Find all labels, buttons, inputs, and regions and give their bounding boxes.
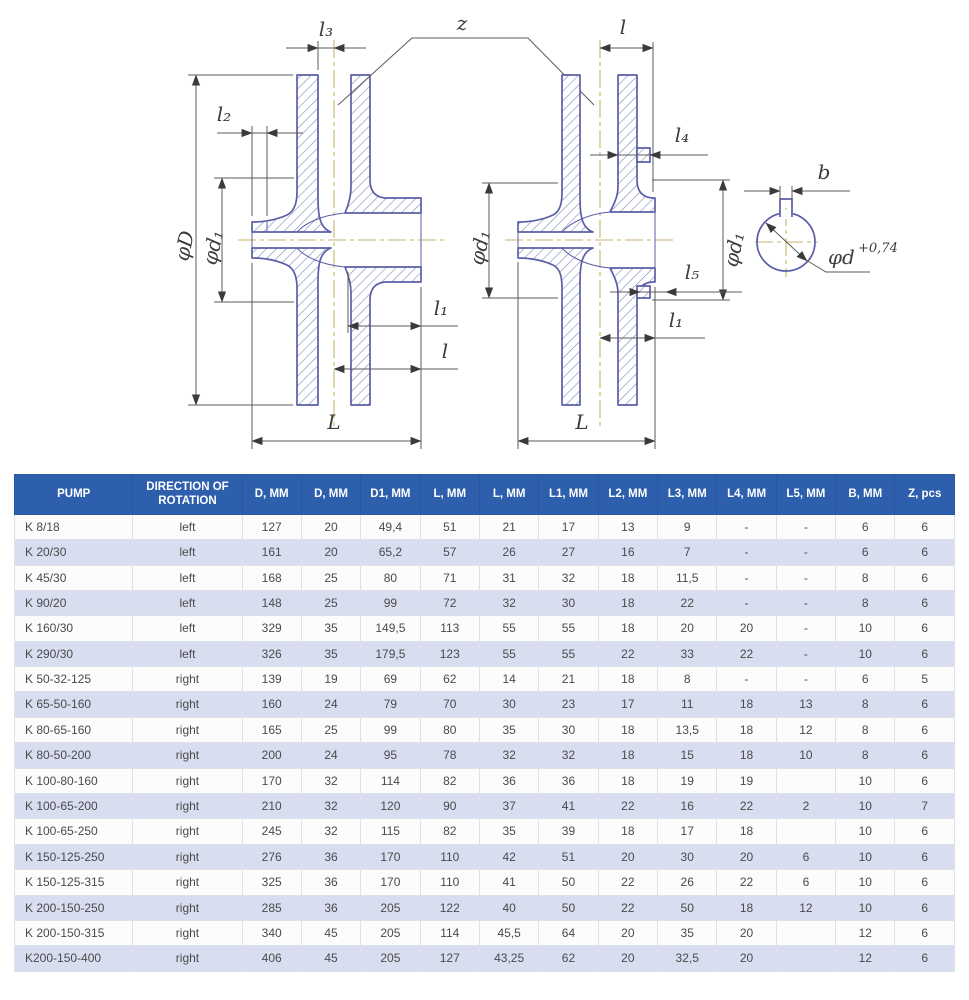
table-cell: 6 (895, 921, 955, 946)
column-header-10: L4, MM (717, 475, 776, 515)
pump-name: K 160/30 (15, 616, 133, 641)
table-cell: 24 (301, 743, 360, 768)
table-cell: 7 (895, 794, 955, 819)
table-cell: 12 (776, 717, 835, 742)
table-row: K 80-65-160right16525998035301813,518128… (15, 717, 955, 742)
column-header-0: PUMP (15, 475, 133, 515)
table-cell: 36 (301, 895, 360, 920)
table-cell: 21 (479, 514, 538, 539)
table-cell: - (776, 565, 835, 590)
table-cell: 340 (242, 921, 301, 946)
table-cell: 8 (836, 565, 895, 590)
table-cell: 20 (717, 946, 776, 971)
table-cell: 30 (539, 717, 598, 742)
table-cell: 120 (361, 794, 420, 819)
drawing-canvas: φD φd₁ l₂ l₃ (0, 0, 969, 472)
table-cell: 25 (301, 717, 360, 742)
table-row: K 65-50-160right16024797030231711181386 (15, 692, 955, 717)
table-cell: 6 (836, 514, 895, 539)
table-cell: 55 (479, 641, 538, 666)
table-row: K 45/30left16825807131321811,5--86 (15, 565, 955, 590)
table-cell (776, 921, 835, 946)
table-cell: - (717, 565, 776, 590)
pump-name: K 8/18 (15, 514, 133, 539)
pump-name: K 100-65-200 (15, 794, 133, 819)
table-cell: 62 (539, 946, 598, 971)
table-cell: 80 (361, 565, 420, 590)
table-cell: 114 (420, 921, 479, 946)
table-cell: 6 (895, 565, 955, 590)
table-cell: 82 (420, 819, 479, 844)
table-cell: 21 (539, 667, 598, 692)
table-cell: - (717, 667, 776, 692)
dim-label-l4: l₄ (675, 123, 689, 147)
table-cell: 22 (658, 590, 717, 615)
table-cell: 10 (836, 895, 895, 920)
table-cell: 18 (598, 565, 657, 590)
front-shroud-lower (252, 248, 331, 405)
table-cell: left (133, 616, 242, 641)
table-cell: 10 (836, 768, 895, 793)
table-cell: right (133, 870, 242, 895)
table-cell: 6 (776, 870, 835, 895)
table-cell: - (776, 616, 835, 641)
pump-dimensions-table: PUMPDIRECTION OF ROTATIOND, MMD, MMD1, M… (14, 474, 955, 972)
table-cell: 139 (242, 667, 301, 692)
table-cell: 6 (895, 692, 955, 717)
table-cell: 7 (658, 540, 717, 565)
table-cell: 8 (836, 717, 895, 742)
dim-label-phid-tolerance: +0,74 (858, 241, 898, 256)
table-cell: 20 (598, 844, 657, 869)
table-cell: 57 (420, 540, 479, 565)
table-cell: 11,5 (658, 565, 717, 590)
column-header-8: L2, MM (598, 475, 657, 515)
table-cell: 205 (361, 895, 420, 920)
table-cell: 17 (598, 692, 657, 717)
table-cell: 22 (598, 794, 657, 819)
table-row: K 90/20left14825997232301822--86 (15, 590, 955, 615)
table-cell: 325 (242, 870, 301, 895)
table-cell: - (717, 590, 776, 615)
table-cell: - (717, 514, 776, 539)
table-cell: 30 (658, 844, 717, 869)
column-header-4: D1, MM (361, 475, 420, 515)
table-row: K 200-150-315right3404520511445,56420352… (15, 921, 955, 946)
front-shroud-upper-right (518, 75, 593, 232)
pump-name: K 20/30 (15, 540, 133, 565)
table-cell: 55 (539, 641, 598, 666)
table-cell: 110 (420, 844, 479, 869)
table-cell: 6 (895, 768, 955, 793)
table-cell: 42 (479, 844, 538, 869)
column-header-7: L1, MM (539, 475, 598, 515)
pump-name: K 45/30 (15, 565, 133, 590)
dim-label-b: b (818, 160, 831, 184)
table-cell: 2 (776, 794, 835, 819)
table-cell: 69 (361, 667, 420, 692)
table-cell: 210 (242, 794, 301, 819)
table-cell: 17 (539, 514, 598, 539)
table-row: K 50-32-125right1391969621421188--65 (15, 667, 955, 692)
table-cell: 32 (301, 768, 360, 793)
table-cell (776, 819, 835, 844)
table-cell: 10 (836, 844, 895, 869)
table-cell: 165 (242, 717, 301, 742)
table-cell: 19 (301, 667, 360, 692)
table-cell: left (133, 590, 242, 615)
table-cell: 6 (895, 870, 955, 895)
pump-name: K 290/30 (15, 641, 133, 666)
table-cell: 37 (479, 794, 538, 819)
table-cell: 90 (420, 794, 479, 819)
table-cell: 65,2 (361, 540, 420, 565)
table-cell: 71 (420, 565, 479, 590)
table-row: K 80-50-200right20024957832321815181086 (15, 743, 955, 768)
table-cell: 6 (895, 590, 955, 615)
pump-name: K 200-150-250 (15, 895, 133, 920)
table-cell: 55 (539, 616, 598, 641)
impeller-drawing: φD φd₁ l₂ l₃ (0, 0, 969, 472)
table-cell (776, 946, 835, 971)
table-cell: right (133, 743, 242, 768)
table-cell: right (133, 717, 242, 742)
table-cell: 15 (658, 743, 717, 768)
table-cell: 22 (598, 895, 657, 920)
pump-name: K 80-65-160 (15, 717, 133, 742)
table-row: K 200-150-250right2853620512240502250181… (15, 895, 955, 920)
table-cell: 148 (242, 590, 301, 615)
pump-name: K 150-125-315 (15, 870, 133, 895)
dim-label-z: z (456, 11, 468, 35)
table-cell: 25 (301, 565, 360, 590)
blade-count-leader: z (338, 11, 594, 105)
table-cell: right (133, 692, 242, 717)
table-cell: 22 (717, 794, 776, 819)
pump-name: K 65-50-160 (15, 692, 133, 717)
table-cell: 39 (539, 819, 598, 844)
table-cell: 20 (658, 616, 717, 641)
table-cell: 35 (658, 921, 717, 946)
table-cell: 170 (361, 844, 420, 869)
front-shroud-lower-right (518, 248, 593, 405)
table-cell: 36 (539, 768, 598, 793)
table-cell: 18 (598, 590, 657, 615)
table-cell: 8 (658, 667, 717, 692)
table-cell: 406 (242, 946, 301, 971)
table-cell: 43,25 (479, 946, 538, 971)
table-cell: 36 (301, 844, 360, 869)
table-cell: 122 (420, 895, 479, 920)
table-cell: 70 (420, 692, 479, 717)
table-cell: - (717, 540, 776, 565)
table-row: K 160/30left32935149,51135555182020-106 (15, 616, 955, 641)
dim-label-phid: φd (828, 245, 855, 269)
table-cell: 99 (361, 590, 420, 615)
table-cell: 72 (420, 590, 479, 615)
table-row: K 150-125-315right3253617011041502226226… (15, 870, 955, 895)
table-cell: 6 (895, 616, 955, 641)
table-cell: 18 (717, 743, 776, 768)
pump-name: K 100-65-250 (15, 819, 133, 844)
table-cell: 6 (895, 743, 955, 768)
table-cell: 18 (598, 768, 657, 793)
table-cell: 35 (479, 819, 538, 844)
table-cell: 20 (301, 514, 360, 539)
table-cell: 20 (717, 844, 776, 869)
table-cell: 20 (301, 540, 360, 565)
table-cell: - (776, 540, 835, 565)
table-cell: 6 (836, 667, 895, 692)
table-cell: 18 (598, 717, 657, 742)
table-cell: 10 (836, 870, 895, 895)
table-cell: 6 (895, 641, 955, 666)
table-cell: 50 (539, 870, 598, 895)
table-cell: 80 (420, 717, 479, 742)
table-cell: 16 (598, 540, 657, 565)
table-cell: 6 (776, 844, 835, 869)
table-cell: 36 (301, 870, 360, 895)
table-cell: right (133, 844, 242, 869)
column-header-6: L, MM (479, 475, 538, 515)
table-cell: 22 (598, 641, 657, 666)
table-cell: left (133, 540, 242, 565)
dimensions-table-wrap: PUMPDIRECTION OF ROTATIOND, MMD, MMD1, M… (0, 472, 969, 972)
table-cell: 32 (301, 819, 360, 844)
table-cell: right (133, 768, 242, 793)
table-cell: left (133, 565, 242, 590)
table-cell: right (133, 794, 242, 819)
table-cell: 245 (242, 819, 301, 844)
table-cell: 23 (539, 692, 598, 717)
table-cell: 51 (420, 514, 479, 539)
table-cell: 10 (836, 641, 895, 666)
table-cell: 13,5 (658, 717, 717, 742)
table-row: K 100-80-160right17032114823636181919106 (15, 768, 955, 793)
table-cell: 19 (717, 768, 776, 793)
table-cell: 6 (895, 540, 955, 565)
table-cell: 11 (658, 692, 717, 717)
table-row: K 290/30left32635179,51235555223322-106 (15, 641, 955, 666)
table-cell: 115 (361, 819, 420, 844)
table-cell: 6 (895, 514, 955, 539)
table-cell: 32 (479, 743, 538, 768)
table-cell: 8 (836, 743, 895, 768)
table-cell: 35 (479, 717, 538, 742)
table-cell: 326 (242, 641, 301, 666)
dim-label-l-right-view: l (620, 15, 626, 39)
back-disc-lower (345, 267, 421, 405)
table-cell: 55 (479, 616, 538, 641)
table-cell: 6 (895, 895, 955, 920)
column-header-9: L3, MM (658, 475, 717, 515)
table-cell: 18 (598, 616, 657, 641)
table-cell: 205 (361, 946, 420, 971)
table-cell (776, 768, 835, 793)
table-row: K 100-65-250right24532115823539181718106 (15, 819, 955, 844)
table-cell: 18 (598, 667, 657, 692)
table-cell: 17 (658, 819, 717, 844)
table-row: K 20/30left1612065,2572627167--66 (15, 540, 955, 565)
table-cell: 35 (301, 641, 360, 666)
table-cell: 26 (658, 870, 717, 895)
table-cell: 170 (242, 768, 301, 793)
table-cell: 6 (895, 819, 955, 844)
table-cell: 8 (836, 590, 895, 615)
table-cell: 113 (420, 616, 479, 641)
table-cell: 24 (301, 692, 360, 717)
column-header-5: L, MM (420, 475, 479, 515)
table-cell: right (133, 667, 242, 692)
table-row: K 100-65-200right21032120903741221622210… (15, 794, 955, 819)
table-cell: right (133, 946, 242, 971)
table-cell: 95 (361, 743, 420, 768)
table-cell: left (133, 641, 242, 666)
table-cell: 62 (420, 667, 479, 692)
table-cell: 6 (836, 540, 895, 565)
table-cell: 18 (717, 819, 776, 844)
table-cell: 18 (717, 692, 776, 717)
table-cell: 123 (420, 641, 479, 666)
table-cell: right (133, 921, 242, 946)
back-disc-upper (345, 75, 421, 213)
table-cell: 10 (836, 819, 895, 844)
table-cell: 18 (598, 743, 657, 768)
table-cell: - (776, 590, 835, 615)
table-cell: right (133, 895, 242, 920)
table-cell: 79 (361, 692, 420, 717)
table-cell: 22 (717, 641, 776, 666)
dim-label-L-right-view: L (574, 410, 588, 434)
table-cell: 99 (361, 717, 420, 742)
table-cell: 40 (479, 895, 538, 920)
table-cell: 200 (242, 743, 301, 768)
table-cell: right (133, 819, 242, 844)
dim-label-phid1-left-view: φd₁ (197, 228, 228, 267)
table-header: PUMPDIRECTION OF ROTATIOND, MMD, MMD1, M… (15, 475, 955, 515)
table-cell: 179,5 (361, 641, 420, 666)
table-cell: 12 (776, 895, 835, 920)
table-cell: 18 (717, 895, 776, 920)
table-row: K 150-125-250right2763617011042512030206… (15, 844, 955, 869)
dim-label-l1-left-view: l₁ (434, 296, 448, 320)
table-cell: 78 (420, 743, 479, 768)
table-cell: 205 (361, 921, 420, 946)
dim-label-L-left-view: L (326, 410, 340, 434)
table-cell: 20 (598, 921, 657, 946)
table-cell: 5 (895, 667, 955, 692)
table-cell: 33 (658, 641, 717, 666)
pump-name: K 200-150-315 (15, 921, 133, 946)
table-cell: - (776, 641, 835, 666)
table-row: K 8/18left1272049,4512117139--66 (15, 514, 955, 539)
column-header-3: D, MM (301, 475, 360, 515)
pump-name: K 90/20 (15, 590, 133, 615)
table-cell: 110 (420, 870, 479, 895)
table-cell: 35 (301, 616, 360, 641)
table-cell: 18 (598, 819, 657, 844)
table-cell: 51 (539, 844, 598, 869)
table-cell: 13 (598, 514, 657, 539)
table-cell: 16 (658, 794, 717, 819)
table-cell: 32 (539, 565, 598, 590)
table-body: K 8/18left1272049,4512117139--66K 20/30l… (15, 514, 955, 971)
impeller-section-right: l l₄ φd₁ φd₁ l₅ (464, 15, 749, 449)
table-cell: 329 (242, 616, 301, 641)
table-cell: 160 (242, 692, 301, 717)
table-cell: 27 (539, 540, 598, 565)
table-cell: 161 (242, 540, 301, 565)
table-cell: left (133, 514, 242, 539)
table-cell: 12 (836, 946, 895, 971)
pump-name: K 80-50-200 (15, 743, 133, 768)
table-cell: 32 (479, 590, 538, 615)
table-cell: 6 (895, 717, 955, 742)
table-cell: 149,5 (361, 616, 420, 641)
table-cell: 41 (479, 870, 538, 895)
dim-label-l-left-view: l (442, 339, 448, 363)
column-header-11: L5, MM (776, 475, 835, 515)
table-cell: 14 (479, 667, 538, 692)
dim-label-l5: l₅ (685, 260, 699, 284)
dim-label-phiD: φD (169, 229, 199, 263)
column-header-12: B, MM (836, 475, 895, 515)
table-cell: 22 (598, 870, 657, 895)
pump-name: K 150-125-250 (15, 844, 133, 869)
table-cell: 20 (717, 616, 776, 641)
table-cell: 25 (301, 590, 360, 615)
table-cell: 22 (717, 870, 776, 895)
column-header-13: Z, pcs (895, 475, 955, 515)
table-cell: 10 (776, 743, 835, 768)
table-cell: 31 (479, 565, 538, 590)
table-cell: 6 (895, 844, 955, 869)
dim-label-l3: l₃ (319, 17, 333, 41)
table-cell: 64 (539, 921, 598, 946)
table-cell: 170 (361, 870, 420, 895)
back-disc-upper-right (610, 75, 655, 212)
table-cell: 114 (361, 768, 420, 793)
table-cell: 45 (301, 921, 360, 946)
table-cell: 19 (658, 768, 717, 793)
table-cell: 50 (539, 895, 598, 920)
table-cell: 36 (479, 768, 538, 793)
table-cell: 127 (242, 514, 301, 539)
table-cell: 30 (539, 590, 598, 615)
dim-label-l1-right-view: l₁ (669, 308, 683, 332)
table-cell: 13 (776, 692, 835, 717)
dim-label-l2: l₂ (217, 102, 231, 126)
table-cell: - (776, 514, 835, 539)
table-cell: 26 (479, 540, 538, 565)
catalog-page: φD φd₁ l₂ l₃ (0, 0, 969, 1000)
table-cell: 20 (717, 921, 776, 946)
table-cell: 285 (242, 895, 301, 920)
table-cell: 50 (658, 895, 717, 920)
column-header-2: D, MM (242, 475, 301, 515)
table-cell: 49,4 (361, 514, 420, 539)
shaft-bore-detail: b φd +0,74 (744, 160, 898, 277)
table-cell: 18 (717, 717, 776, 742)
table-cell: 8 (836, 692, 895, 717)
pump-name: K 50-32-125 (15, 667, 133, 692)
table-cell: 6 (895, 946, 955, 971)
table-cell: 45,5 (479, 921, 538, 946)
table-cell: 9 (658, 514, 717, 539)
front-shroud-upper (252, 75, 331, 232)
table-cell: 10 (836, 794, 895, 819)
table-cell: 32 (301, 794, 360, 819)
